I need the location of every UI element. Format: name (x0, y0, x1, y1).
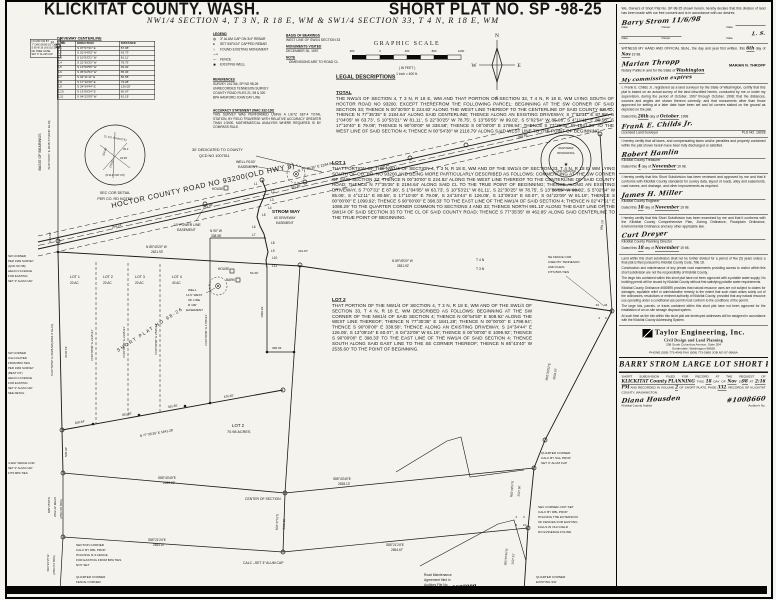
survey-label: 800 (432, 49, 437, 53)
survey-label: L11 (272, 264, 277, 268)
note-paragraph: The large lots, parcels, or tracts conta… (622, 305, 766, 313)
survey-label: BARN (226, 278, 236, 282)
survey-label: FITS BPA TIES (548, 270, 569, 274)
survey-label: CALC –SET 3″ ALUM CAP (243, 561, 284, 565)
survey-label: LOT 4 (172, 275, 182, 279)
building-icon (230, 269, 234, 273)
survey-label: S85°43'40″E (158, 476, 176, 480)
rebar-icon (184, 405, 187, 408)
survey-label: N 00°00'00″ E 2645.77'(2640' GLO) (47, 121, 51, 170)
survey-label: 3 (605, 316, 607, 320)
survey-label: 36.1' (123, 147, 129, 151)
page-subtitle: NW1/4 SECTION 4, T 3 N, R 18 E, WM & SW1… (30, 16, 616, 25)
survey-label: N 89°49'20″ W (392, 259, 413, 263)
survey-label: 70.98 ACRES (227, 430, 251, 434)
survey-label: SET 3″ ALUM CAP (8, 279, 32, 283)
survey-label: 381.88' (202, 203, 213, 209)
survey-label: 676.65' (223, 393, 234, 399)
note-paragraph: At such time as the lots within this sho… (622, 314, 766, 322)
legal-description-lot1: LOT 1 THAT PORTION OF THE NW1/4 OF SECTI… (332, 160, 615, 221)
survey-label: (2591.50' BPA) (59, 499, 63, 518)
survey-label: 40 AC (172, 281, 181, 285)
survey-label: 224.82' (101, 146, 108, 156)
recording-block: SHORT SUBDIVISION FILED FOR RECORD AT TH… (619, 372, 768, 410)
engineer-certificate: I hereby certify that this Short Subdivi… (619, 173, 768, 214)
survey-label: 4 (515, 515, 517, 519)
note-paragraph: Construction and maintenance of any priv… (622, 267, 766, 275)
engineering-firm-block: Taylor Engineering, Inc. Civil Design an… (619, 326, 768, 357)
survey-label: (BEST FIT) (8, 371, 23, 375)
driveway-centerline-table: DRIVEWAY CENTERLINE LINE DIRECTION DISTA… (57, 36, 160, 100)
survey-label: 224.82' (48, 232, 52, 242)
rebar-icon (57, 251, 60, 254)
survey-label: NO EVIDENCE FOUND (538, 530, 572, 534)
survey-label: 2621.93' (151, 250, 164, 254)
driveway-table-title: DRIVEWAY CENTERLINE (57, 36, 102, 41)
survey-label: 20 AC (103, 281, 112, 285)
survey-label: FITS BPA TIES (8, 471, 28, 475)
survey-label: PER 1982 SURVEY (8, 259, 34, 263)
survey-label: N 00°54'50″ E 2628.59'(2633.4' GLO) (50, 324, 54, 375)
survey-label: 2609.80' (282, 518, 286, 530)
survey-label: SHORT PLAT NO 98-26 (116, 306, 184, 353)
survey-label: FOR EASTING (8, 274, 28, 278)
accuracy-title: ACCURACY STATEMENT (WAC 332-130) (213, 109, 274, 113)
pls-number: PLS NO. 18028 (742, 131, 766, 135)
surveyor-certificate: I, Frank E. Childs Jr., registered as a … (619, 84, 768, 137)
survey-label: (2591.54' BPA) (52, 555, 56, 574)
recording-request: KLICKITAT County PLANNING (622, 379, 695, 385)
survey-label: 2592.32' MEAS (53, 497, 57, 517)
survey-label: PROFESSIONAL (557, 152, 576, 155)
survey-line (62, 390, 283, 430)
survey-label: L9 (271, 249, 275, 253)
bottom-border-bar (7, 586, 767, 594)
legal-descriptions-heading: LEGAL DESCRIPTIONS (336, 74, 616, 80)
rebar-icon (293, 351, 296, 354)
building-icon (236, 278, 240, 282)
rebar-icon (138, 414, 141, 417)
survey-label: 2634.07' (552, 367, 558, 380)
survey-label: NOT SET (76, 563, 89, 567)
legend-title: LEGEND (213, 33, 227, 37)
survey-label: L10 (272, 256, 278, 260)
survey-label: 279.87' (108, 158, 115, 168)
survey-label: Road Maintenance (424, 573, 452, 577)
accuracy-statement: ACCURACY STATEMENT (WAC 332-130) THIS SU… (213, 109, 321, 130)
references-title: REFERENCES (213, 78, 235, 82)
notary-block: WITNESS MY HAND AND OFFICIAL SEAL, the d… (619, 44, 768, 84)
plat-notes: Land within this short subdivision shall… (619, 254, 768, 325)
survey-line (283, 528, 528, 552)
basis-of-bearings: BASIS OF BEARINGS WEST LINE OF SW1/4 SEC… (286, 34, 386, 65)
survey-label: 508.92' (64, 447, 68, 457)
plat-title: BARRY STROM LARGE LOT SHORT PLAT (619, 360, 768, 369)
survey-label: 2535.60' (163, 481, 176, 485)
survey-label: L8 (271, 241, 275, 245)
survey-label: HOLDING N-S FENCE (76, 553, 108, 557)
legal-description-total: TOTAL THE NW1/4 OF SECTION 4, T 3 N, R 1… (336, 90, 614, 134)
survey-label: N 00°00'00″ E 2135.91' (90, 329, 94, 360)
survey-label: OF FENCES FOR EASTING (538, 520, 578, 524)
survey-label: 33 (596, 303, 600, 307)
taylor-engineering-logo-icon (642, 329, 652, 338)
survey-label: Agreement filed in (424, 578, 451, 582)
survey-label: 338.58' (211, 234, 222, 238)
engineer-signature: James H. Miller (621, 189, 683, 201)
survey-label: 400 (405, 49, 410, 53)
survey-label: 2654.67' (391, 548, 404, 552)
survey-line (566, 276, 604, 306)
survey-label: REGISTERED (559, 148, 574, 150)
survey-label: E (517, 63, 521, 69)
rebar-icon (266, 351, 269, 354)
survey-label: LOT 1 (70, 275, 80, 279)
planning-certificate: I hereby certify that this Short Subdivi… (619, 214, 768, 255)
note-paragraph: Klickitat County Ordinance #080595 provi… (622, 286, 766, 303)
survey-label: HOUSE (218, 267, 229, 271)
survey-label: 54.39' (250, 271, 259, 275)
survey-label: WELL R100' (236, 160, 256, 164)
survey-label: 23.36' (120, 156, 128, 160)
survey-label: 10 (523, 523, 527, 527)
table-row: L11S 04°22'09″ W81.19' (57, 95, 155, 100)
survey-label: SEC CORNER–NOT SET (538, 505, 574, 509)
survey-label: L3 (270, 198, 274, 202)
survey-label: CALCULATED (8, 356, 27, 360)
survey-label: QCD NO 1007511 (199, 154, 230, 158)
survey-label: 2118.79' (64, 346, 68, 358)
survey-label: N 90° W (210, 229, 222, 233)
survey-line (206, 288, 215, 293)
survey-label: S03°26'15″W (46, 554, 50, 571)
building-icon (224, 186, 228, 190)
survey-label: CALC BY SGL PROP (541, 456, 571, 460)
survey-label: AND KLEIN (548, 265, 564, 269)
survey-label: (N.W.& 3.66' CH) (105, 174, 124, 177)
well-icon (217, 285, 219, 287)
survey-label: FOR EASTING FROM BPA TIES (76, 558, 121, 562)
survey-label: 1200 (458, 49, 465, 53)
survey-label: L7 (252, 233, 256, 237)
fence-icon: —×— (213, 52, 220, 62)
survey-label: L1 (254, 182, 258, 186)
survey-label: S05°07'46″W (503, 548, 508, 566)
survey-label: EASEMENT (177, 228, 196, 232)
survey-label: USED BY TENNESON (548, 260, 580, 264)
survey-label: HELD N-S FENCE (8, 376, 32, 380)
owner-signature-2: L. S. (752, 30, 766, 37)
monuments-visited: MONUMENTS VISITED (286, 45, 321, 49)
survey-label: EASEMENT (238, 165, 258, 169)
plat-document-page: HOCTOR COUNTY ROAD NO 93200(OLD HWY 8)N … (0, 0, 776, 600)
survey-label: LOT 2 (103, 275, 113, 279)
survey-label: HOUSE (212, 187, 223, 191)
survey-label: 2831.92' (397, 264, 410, 268)
survey-label: CALC BY DBL PROP (538, 510, 568, 514)
survey-label: EASEMENT (276, 221, 294, 225)
column-divider (616, 4, 617, 586)
survey-label: N 00°00'00″ E 1798.94' (204, 314, 208, 345)
survey-label: SET 3″ ALUM CAP (8, 386, 32, 390)
survey-label: 400.84' (74, 419, 85, 425)
survey-label: FROM BPA TIES (8, 361, 30, 365)
survey-line (283, 265, 300, 552)
survey-label: 991.10' (599, 219, 604, 230)
survey-label: 34 (604, 303, 608, 307)
survey-label: N02°47'51″E (275, 514, 280, 531)
survey-label: N 85°43'20″ W (146, 245, 167, 249)
survey-label: 2654.67' (153, 543, 166, 547)
survey-label: CL CO. RD(N72°E) (103, 134, 127, 142)
survey-label: 431.67' (298, 249, 308, 253)
survey-label: L2 (271, 190, 275, 194)
note-heading: NOTE (286, 56, 295, 60)
survey-label: 3 (523, 515, 525, 519)
survey-label: S85°21'24″E (386, 543, 404, 547)
survey-label: T 3 N (476, 267, 485, 271)
survey-label: 14.5' WEST (186, 293, 203, 297)
firm-name: Taylor Engineering, Inc. (655, 328, 745, 338)
survey-label: 60' DRIVEWAY (274, 216, 297, 220)
treasurer-certificate: I hereby certify that all taxes, and com… (619, 137, 768, 173)
survey-label: HOCTOR COUNTY ROAD NO 93200(OLD HWY 8) (110, 161, 295, 210)
survey-label: ( IN FEET ) (399, 66, 416, 70)
survey-label: 20 AC (135, 281, 144, 285)
survey-label: 9 (515, 523, 517, 527)
note-paragraph: The large lots contained within this sho… (622, 277, 766, 285)
notary-month: Nov (622, 52, 631, 58)
survey-label: NE FENCE COR (548, 255, 572, 259)
well-icon: ◉ (213, 63, 220, 68)
survey-label: T 4 N (476, 258, 485, 262)
survey-label: QUARTER CORNER (541, 451, 571, 455)
survey-label: 30' DEDICATED TO COUNTY (192, 148, 243, 152)
survey-label: S85°43'40″E (333, 477, 351, 481)
survey-label: SEE DETAIL (8, 391, 25, 395)
survey-label: FALLS IN OLD FIELD (538, 525, 569, 529)
survey-label: 20 AC (70, 281, 79, 285)
notary-name: MARIAN N. THROPP (729, 63, 765, 68)
survey-label: QUARTER CORNER (536, 575, 566, 579)
survey-label: N02°28'52″E (545, 363, 552, 381)
survey-label: WELL (188, 288, 197, 292)
survey-label: LOT 3 (135, 275, 145, 279)
survey-label: EXISTING SW (536, 580, 556, 584)
survey-label: 2627.50' (517, 485, 522, 497)
survey-label: (QCD NO 98) (8, 264, 26, 268)
survey-label: CALC BY DBL PROP (76, 548, 106, 552)
well-icon (295, 173, 297, 175)
survey-label: CENTER OF SECTION (245, 497, 281, 501)
certificates-column: We, Owners of Short Plat No. SP-98-25 sh… (619, 5, 768, 590)
survey-label: FENCE CORNER (76, 580, 102, 584)
rebar-icon (209, 402, 212, 405)
survey-label: N02°28'57″E (509, 481, 514, 498)
survey-label: SET 3″ ALUM CAP (541, 461, 567, 465)
survey-label: STROM WAY (272, 209, 300, 214)
survey-label: N (495, 33, 499, 39)
survey-label: SECTION CORNER (76, 543, 105, 547)
survey-label: 2627.51' (511, 553, 516, 565)
survey-label: L6 (252, 225, 256, 229)
survey-label: HOLDING THE EXTENSION (538, 515, 578, 519)
survey-label: 4 (598, 316, 600, 320)
survey-label: 381.88' (121, 411, 132, 417)
rebar-icon (92, 423, 95, 426)
survey-label: 10' POWER LINE (174, 223, 201, 227)
survey-label: N05°25'07″E (47, 497, 51, 513)
survey-label: SW CORNER (8, 351, 26, 355)
survey-label: LOT 2 (232, 423, 245, 428)
survey-label: 1099.92' (260, 306, 264, 318)
survey-label: EASEMENT (186, 308, 203, 312)
survey-label: BASIS OF BEARINGS (38, 133, 42, 171)
survey-label: PER 1982 SURVEY (8, 366, 34, 370)
survey-label: HELD N-S FENCE (8, 269, 32, 273)
survey-label: SEC COR DETAIL (100, 191, 130, 195)
survey-label: PER CO. RD NOTES (97, 197, 133, 201)
plat-title-block: BARRY STROM LARGE LOT SHORT PLAT (619, 357, 768, 372)
survey-line (58, 252, 63, 473)
survey-label: SW CORNER (8, 254, 26, 258)
survey-label: 381.85' (290, 184, 301, 190)
survey-line (285, 468, 534, 493)
survey-label: S85°21'24″E (148, 538, 166, 542)
survey-label: OF LINE (188, 298, 200, 302)
survey-label: 2638.13' (338, 482, 351, 486)
notary-day: 6th (746, 46, 754, 52)
survey-label: 398.33' (272, 346, 282, 350)
legal-description-lot2: LOT 2 THAT PORTION OF THE NW1/4 OF SECTI… (332, 297, 532, 352)
survey-label: N 77°35'35″ E 1841.28' (139, 428, 174, 438)
survey-label: W (471, 63, 477, 69)
survey-label: R 100' (188, 303, 197, 307)
survey-label: L5 (262, 213, 266, 217)
survey-label: SET 3″ ALUM CAP (8, 466, 32, 470)
survey-label: 381.85' (167, 403, 178, 409)
references: REFERENCES SURVEY 241766, SP NO 98-26 UN… (213, 78, 333, 100)
survey-label: 4-WAY FENCE COR (8, 461, 35, 465)
survey-line (60, 473, 63, 592)
note-paragraph: Land within this short subdivision shall… (622, 257, 766, 265)
notary-expires: My commission expires (621, 74, 693, 84)
survey-label: QUARTER CORNER (76, 575, 106, 579)
survey-label: FOR EASTING (8, 381, 28, 385)
owners-declaration: We, Owners of Short Plat No. SP-98-25 sh… (619, 5, 768, 44)
